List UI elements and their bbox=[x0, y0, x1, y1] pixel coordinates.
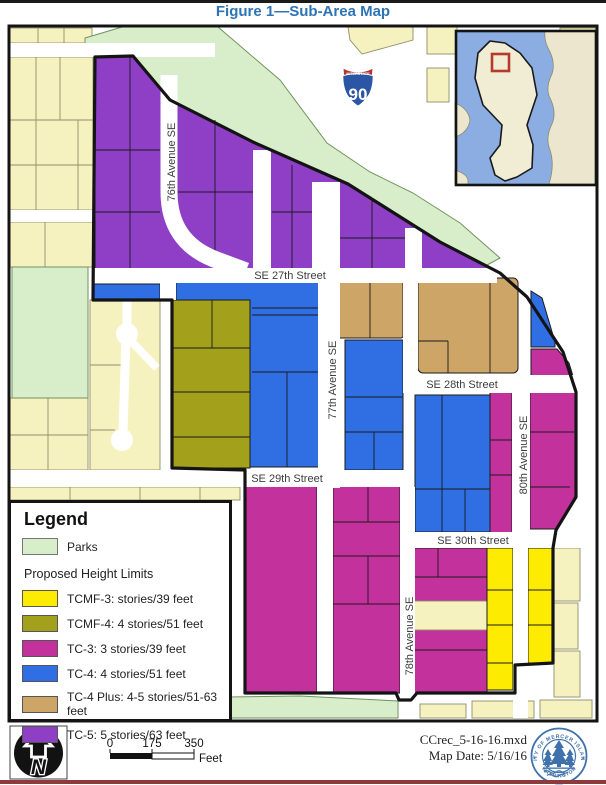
credits-map-date: Map Date: 5/16/16 bbox=[327, 748, 527, 764]
legend-item-tcmf4: TCMF-4: 4 stories/51 feet bbox=[22, 615, 229, 632]
street-label-76th-ave: 76th Avenue SE bbox=[166, 123, 178, 202]
parks-label: Parks bbox=[67, 540, 98, 554]
legend-item-tc4plus: TC-4 Plus: 4-5 stories/51-63 feet bbox=[22, 690, 229, 718]
map-credits: CCrec_5-16-16.mxd Map Date: 5/16/16 bbox=[327, 732, 527, 764]
zone-tc4-south28 bbox=[415, 395, 490, 532]
legend-section-title: Proposed Height Limits bbox=[24, 567, 229, 581]
legend-title: Legend bbox=[24, 509, 229, 530]
tc4-label: TC-4: 4 stories/51 feet bbox=[67, 667, 186, 681]
tc5-swatch bbox=[22, 726, 58, 743]
scale-unit-label: Feet bbox=[199, 753, 223, 765]
shield-system-label: INTERSTATE bbox=[346, 72, 370, 76]
legend: Legend Parks Proposed Height Limits TCMF… bbox=[8, 500, 232, 722]
legend-item-parks: Parks bbox=[22, 538, 229, 555]
zone-tcmf4 bbox=[172, 300, 250, 468]
city-seal-logo: CITY OF MERCER ISLAND WASHINGTON bbox=[527, 723, 587, 784]
shield-route-number: 90 bbox=[349, 85, 368, 104]
zone-tc3-west80 bbox=[490, 390, 512, 545]
legend-item-tc5: TC-5: 5 stories/63 feet bbox=[22, 726, 229, 743]
page-bottom-rule bbox=[0, 780, 606, 784]
legend-item-tc4: TC-4: 4 stories/51 feet bbox=[22, 665, 229, 682]
zone-tc4plus-east bbox=[418, 278, 518, 373]
tc4plus-label: TC-4 Plus: 4-5 stories/51-63 feet bbox=[67, 690, 229, 718]
zone-tc3-block1 bbox=[245, 483, 317, 693]
parcel-island-in-tc3 bbox=[413, 601, 487, 630]
zone-tc4-sliver-west bbox=[93, 284, 160, 299]
interstate-90-shield: INTERSTATE 90 bbox=[343, 68, 374, 107]
street-label-se-30th: SE 30th Street bbox=[437, 535, 509, 547]
zone-tcmf3-strip2 bbox=[528, 548, 553, 663]
street-label-se-29th: SE 29th Street bbox=[251, 473, 323, 485]
island-locator-inset bbox=[455, 31, 597, 185]
north-letter: N bbox=[31, 756, 47, 779]
street-label-se-27th: SE 27th Street bbox=[254, 270, 326, 282]
tc3-label: TC-3: 3 stories/39 feet bbox=[67, 642, 186, 656]
credits-filename: CCrec_5-16-16.mxd bbox=[327, 732, 527, 748]
zone-tc3-block2 bbox=[333, 483, 400, 693]
legend-item-tc3: TC-3: 3 stories/39 feet bbox=[22, 640, 229, 657]
tc5-label: TC-5: 5 stories/63 feet bbox=[67, 728, 186, 742]
parks-swatch bbox=[22, 538, 58, 555]
street-label-77th-ave: 77th Avenue SE bbox=[327, 341, 339, 420]
tcmf3-swatch bbox=[22, 590, 58, 607]
zone-tcmf3-strip1 bbox=[487, 548, 513, 690]
street-label-se-28th: SE 28th Street bbox=[426, 379, 498, 391]
tc4-swatch bbox=[22, 665, 58, 682]
tc3-swatch bbox=[22, 640, 58, 657]
street-label-80th-ave: 80th Avenue SE bbox=[518, 416, 530, 495]
tcmf3-label: TCMF-3: stories/39 feet bbox=[67, 592, 193, 606]
tc4plus-swatch bbox=[22, 696, 58, 713]
street-label-78th-ave: 78th Avenue SE bbox=[404, 597, 416, 676]
legend-item-tcmf3: TCMF-3: stories/39 feet bbox=[22, 590, 229, 607]
park-west-block bbox=[12, 267, 88, 398]
tcmf4-swatch bbox=[22, 615, 58, 632]
tcmf4-label: TCMF-4: 4 stories/51 feet bbox=[67, 617, 203, 631]
zone-tc4plus-west bbox=[338, 275, 403, 338]
figure-page: Figure 1—Sub-Area Map bbox=[0, 0, 606, 785]
